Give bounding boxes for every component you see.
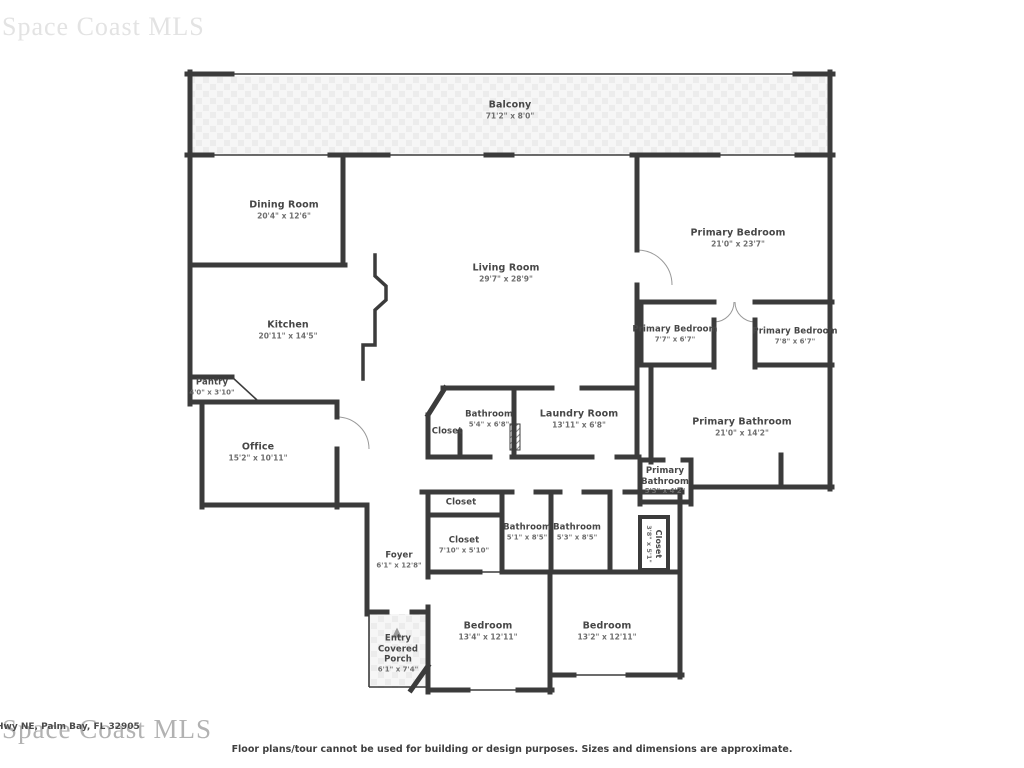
room-label-primary-closet-left: Primary Bedroom 7'7" x 6'7" [632,324,717,343]
room-dims: 20'11" x 14'5" [259,331,318,340]
room-label-living-room: Living Room 29'7" x 28'9" [473,262,540,283]
room-dims: 13'11" x 6'8" [540,420,618,429]
room-dims: 5'1" x 8'5" [503,533,551,542]
room-dims: 13'4" x 12'11" [459,632,518,641]
address-overlay: Hwy NE, Palm Bay, FL 32905 [0,722,140,732]
room-dims: 7'8" x 6'7" [752,337,837,346]
room-name: Foyer [376,550,421,561]
room-dims: 6'1" x 12'8" [376,561,421,570]
room-name: Closet [446,498,476,509]
room-label-closet-mid: Closet 7'10" x 5'10" [439,535,489,554]
room-label-closet-top: Closet [446,498,476,509]
room-name: Living Room [473,262,540,274]
floor-plan-page: { "watermarks": { "top_left": "Space Coa… [0,0,1024,768]
room-dims: 3'8" x 5'1" [645,525,653,563]
room-label-primary-bathroom-small: Primary Bathroom 5'3" x 4'2" [639,466,691,496]
room-name: Entry [366,634,430,645]
room-name: Bathroom [465,409,513,420]
room-label-kitchen: Kitchen 20'11" x 14'5" [259,319,318,340]
room-dims: 7'10" x 5'10" [439,546,489,555]
room-name: Bedroom [578,620,637,632]
room-name: Primary Bathroom [639,466,691,487]
room-dims: 13'2" x 12'11" [578,632,637,641]
room-name: Closet [432,427,462,438]
room-label-primary-bathroom: Primary Bathroom 21'0" x 14'2" [692,416,792,437]
room-name: Primary Bedroom [690,227,785,239]
room-label-closet-hall: Closet [432,427,462,438]
room-label-closet-vertical: Closet 3'8" x 5'1" [645,525,663,563]
room-name: Dining Room [249,199,318,211]
room-name: Covered Porch [366,644,430,665]
room-label-bedroom-1: Bedroom 13'4" x 12'11" [459,620,518,641]
room-label-laundry-room: Laundry Room 13'11" x 6'8" [540,408,618,429]
room-label-bathroom-2: Bathroom 5'3" x 8'5" [553,522,601,541]
room-name: Office [229,441,288,453]
disclaimer-text: Floor plans/tour cannot be used for buil… [0,744,1024,755]
room-dims: 5'3" x 4'2" [639,487,691,496]
room-dims: 71'2" x 8'0" [486,111,535,120]
room-dims: 5'4" x 6'8" [465,420,513,429]
room-label-pantry: Pantry 4'0" x 3'10" [189,377,234,396]
window-lines [212,74,797,690]
room-label-dining-room: Dining Room 20'4" x 12'6" [249,199,318,220]
room-name: Bathroom [503,522,551,533]
room-label-primary-closet-right: Primary Bedroom 7'8" x 6'7" [752,326,837,345]
room-dims: 20'4" x 12'6" [249,211,318,220]
room-label-bedroom-2: Bedroom 13'2" x 12'11" [578,620,637,641]
room-label-bathroom-1: Bathroom 5'1" x 8'5" [503,522,551,541]
room-label-foyer: Foyer 6'1" x 12'8" [376,550,421,569]
room-label-balcony: Balcony 71'2" x 8'0" [486,99,535,120]
room-name: Balcony [486,99,535,111]
room-name: Closet [653,525,663,563]
room-dims: 7'7" x 6'7" [632,335,717,344]
room-name: Kitchen [259,319,318,331]
room-dims: 6'1" x 7'4" [366,666,430,675]
room-dims: 15'2" x 10'11" [229,453,288,462]
room-name: Closet [439,535,489,546]
room-dims: 5'3" x 8'5" [553,533,601,542]
room-name: Laundry Room [540,408,618,420]
room-dims: 4'0" x 3'10" [189,388,234,397]
room-dims: 29'7" x 28'9" [473,274,540,283]
room-name: Primary Bedroom [752,326,837,337]
watermark-top-left: Space Coast MLS [2,12,205,42]
room-name: Primary Bathroom [692,416,792,428]
room-label-office: Office 15'2" x 10'11" [229,441,288,462]
walls [187,72,833,692]
room-dims: 21'0" x 14'2" [692,428,792,437]
room-name: Pantry [189,377,234,388]
room-label-bathroom-hall: Bathroom 5'4" x 6'8" [465,409,513,428]
room-dims: 21'0" x 23'7" [690,239,785,248]
room-name: Primary Bedroom [632,324,717,335]
room-name: Bathroom [553,522,601,533]
room-label-primary-bedroom: Primary Bedroom 21'0" x 23'7" [690,227,785,248]
room-label-entry-covered-porch: Entry Covered Porch 6'1" x 7'4" [366,634,430,675]
room-name: Bedroom [459,620,518,632]
